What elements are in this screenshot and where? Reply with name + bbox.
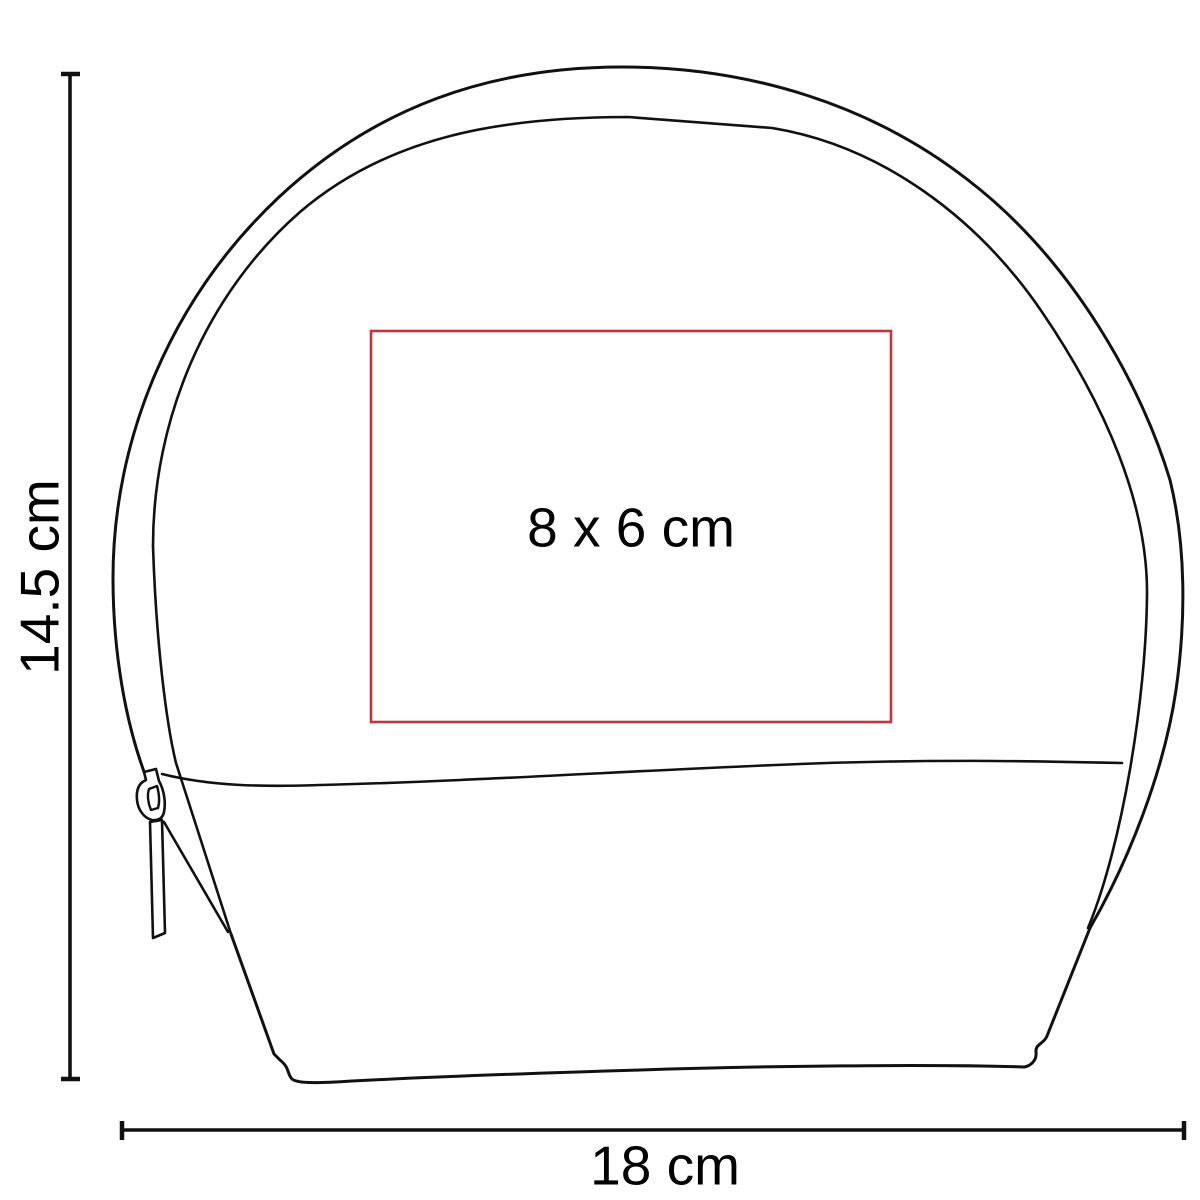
zipper-pull-strap <box>150 820 165 938</box>
zipper-slider-hole <box>148 786 159 810</box>
zipper-band-edge-below-slider <box>164 822 228 932</box>
height-dimension-label: 14.5 cm <box>13 479 68 675</box>
pouch-bottom-outline <box>231 928 1090 1083</box>
cosmetic-pouch-diagram <box>0 0 1200 1200</box>
width-dimension-label: 18 cm <box>590 1139 740 1194</box>
dimension-lines-group <box>61 74 1184 1140</box>
pouch-outline-group <box>113 67 1183 1083</box>
print-area-label: 8 x 6 cm <box>527 501 735 556</box>
pocket-seam-line <box>162 761 1122 786</box>
diagram-canvas: 14.5 cm 18 cm 8 x 6 cm <box>0 0 1200 1200</box>
